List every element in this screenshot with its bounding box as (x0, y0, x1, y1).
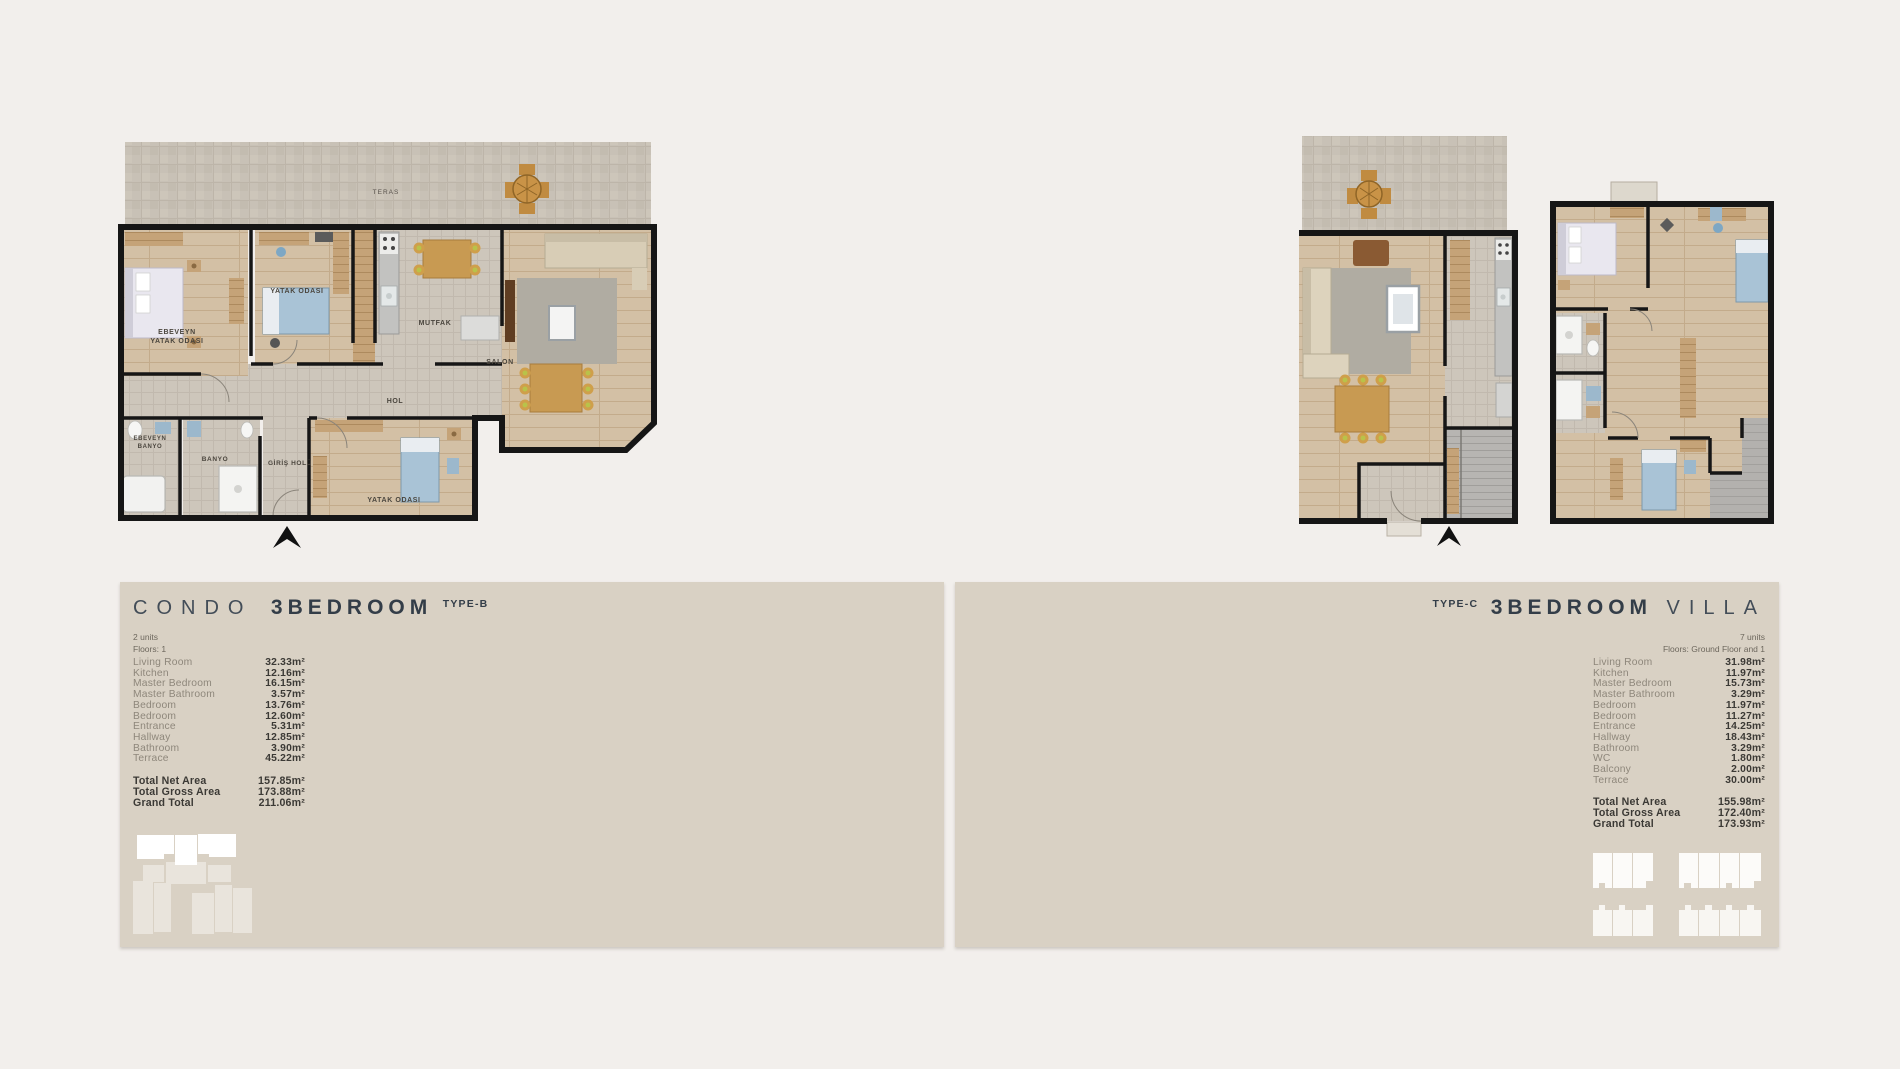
condo-floorplan: TERAS (105, 128, 665, 558)
condo-room-list: Living Room32.33m²Kitchen12.16m²Master B… (133, 658, 305, 765)
condo-panel: CONDO 3BEDROOM TYPE-B 2 units Floors: 1 … (120, 582, 944, 947)
room-name: Bedroom (1593, 701, 1636, 712)
hall-closet (1680, 338, 1696, 418)
villa-first-floorplan (1550, 128, 1785, 558)
room-row: Bedroom13.76m² (133, 701, 305, 712)
label-bedroom-top: YATAK ODASI (270, 288, 323, 295)
room-name: Grand Total (133, 798, 194, 809)
villa-terrace (1302, 136, 1507, 236)
room-row: Terrace45.22m² (133, 754, 305, 765)
room-name: Bedroom (133, 701, 176, 712)
condo-title: CONDO 3BEDROOM TYPE-B (133, 596, 488, 620)
label-master-bath-1: EBEVEYN (134, 436, 167, 442)
room-row: Grand Total173.93m² (1593, 819, 1765, 830)
condo-units: 2 units (133, 632, 166, 644)
room-area: 173.93m² (1718, 819, 1765, 830)
label-living: SALON (486, 359, 514, 366)
villa-panel: TYPE-C 3BEDROOM VILLA 7 units Floors: Gr… (955, 582, 1779, 947)
condo-terrace (125, 142, 651, 230)
room-area: 11.97m² (1726, 701, 1765, 712)
site-plan-left (132, 832, 277, 937)
room-name: Terrace (1593, 776, 1629, 787)
label-entrance: GİRİŞ HOLÜ (268, 458, 312, 467)
site-plan-right (1591, 848, 1771, 940)
room-row: Bedroom11.97m² (1593, 701, 1765, 712)
condo-title-bold: 3BEDROOM (271, 596, 432, 619)
condo-totals-list: Total Net Area157.85m²Total Gross Area17… (133, 776, 305, 809)
room-row: Terrace30.00m² (1593, 776, 1765, 787)
villa-meta: 7 units Floors: Ground Floor and 1 (1663, 632, 1765, 656)
villa-porch (1387, 522, 1421, 536)
room-area: 211.06m² (259, 798, 305, 809)
label-bath: BANYO (202, 456, 228, 463)
label-terrace: TERAS (373, 189, 400, 196)
room-name: Terrace (133, 754, 169, 765)
room-name: Grand Total (1593, 819, 1654, 830)
villa-title-light: VILLA (1667, 597, 1766, 619)
villa-title-type: TYPE-C (1433, 598, 1479, 610)
label-master-bath-2: BANYO (138, 444, 163, 450)
condo-title-type: TYPE-B (443, 598, 489, 610)
villa-floors: Floors: Ground Floor and 1 (1663, 644, 1765, 656)
villa-units: 7 units (1663, 632, 1765, 644)
label-bedroom-bottom: YATAK ODASI (367, 497, 420, 504)
room-area: 13.76m² (265, 701, 305, 712)
label-master-bedroom-2: YATAK ODASI (150, 338, 203, 345)
villa-ground-floorplan (1295, 128, 1525, 558)
room-area: 30.00m² (1725, 776, 1765, 787)
label-kitchen: MUTFAK (419, 320, 452, 327)
label-hall: HOL (387, 398, 404, 405)
room-row: Grand Total211.06m² (133, 798, 305, 809)
villa-title-bold: 3BEDROOM (1491, 596, 1652, 619)
condo-title-light: CONDO (133, 597, 252, 619)
villa-totals-list: Total Net Area155.98m²Total Gross Area17… (1593, 797, 1765, 830)
villa-room-list: Living Room31.98m²Kitchen11.97m²Master B… (1593, 658, 1765, 786)
north-arrow (273, 526, 301, 548)
condo-floors: Floors: 1 (133, 644, 166, 656)
room-area: 45.22m² (265, 754, 305, 765)
label-master-bedroom-1: EBEVEYN (158, 329, 196, 336)
north-arrow-villa (1437, 526, 1461, 546)
brochure-page: TERAS (0, 0, 1900, 1069)
villa-title: TYPE-C 3BEDROOM VILLA (1433, 596, 1766, 620)
condo-meta: 2 units Floors: 1 (133, 632, 166, 656)
